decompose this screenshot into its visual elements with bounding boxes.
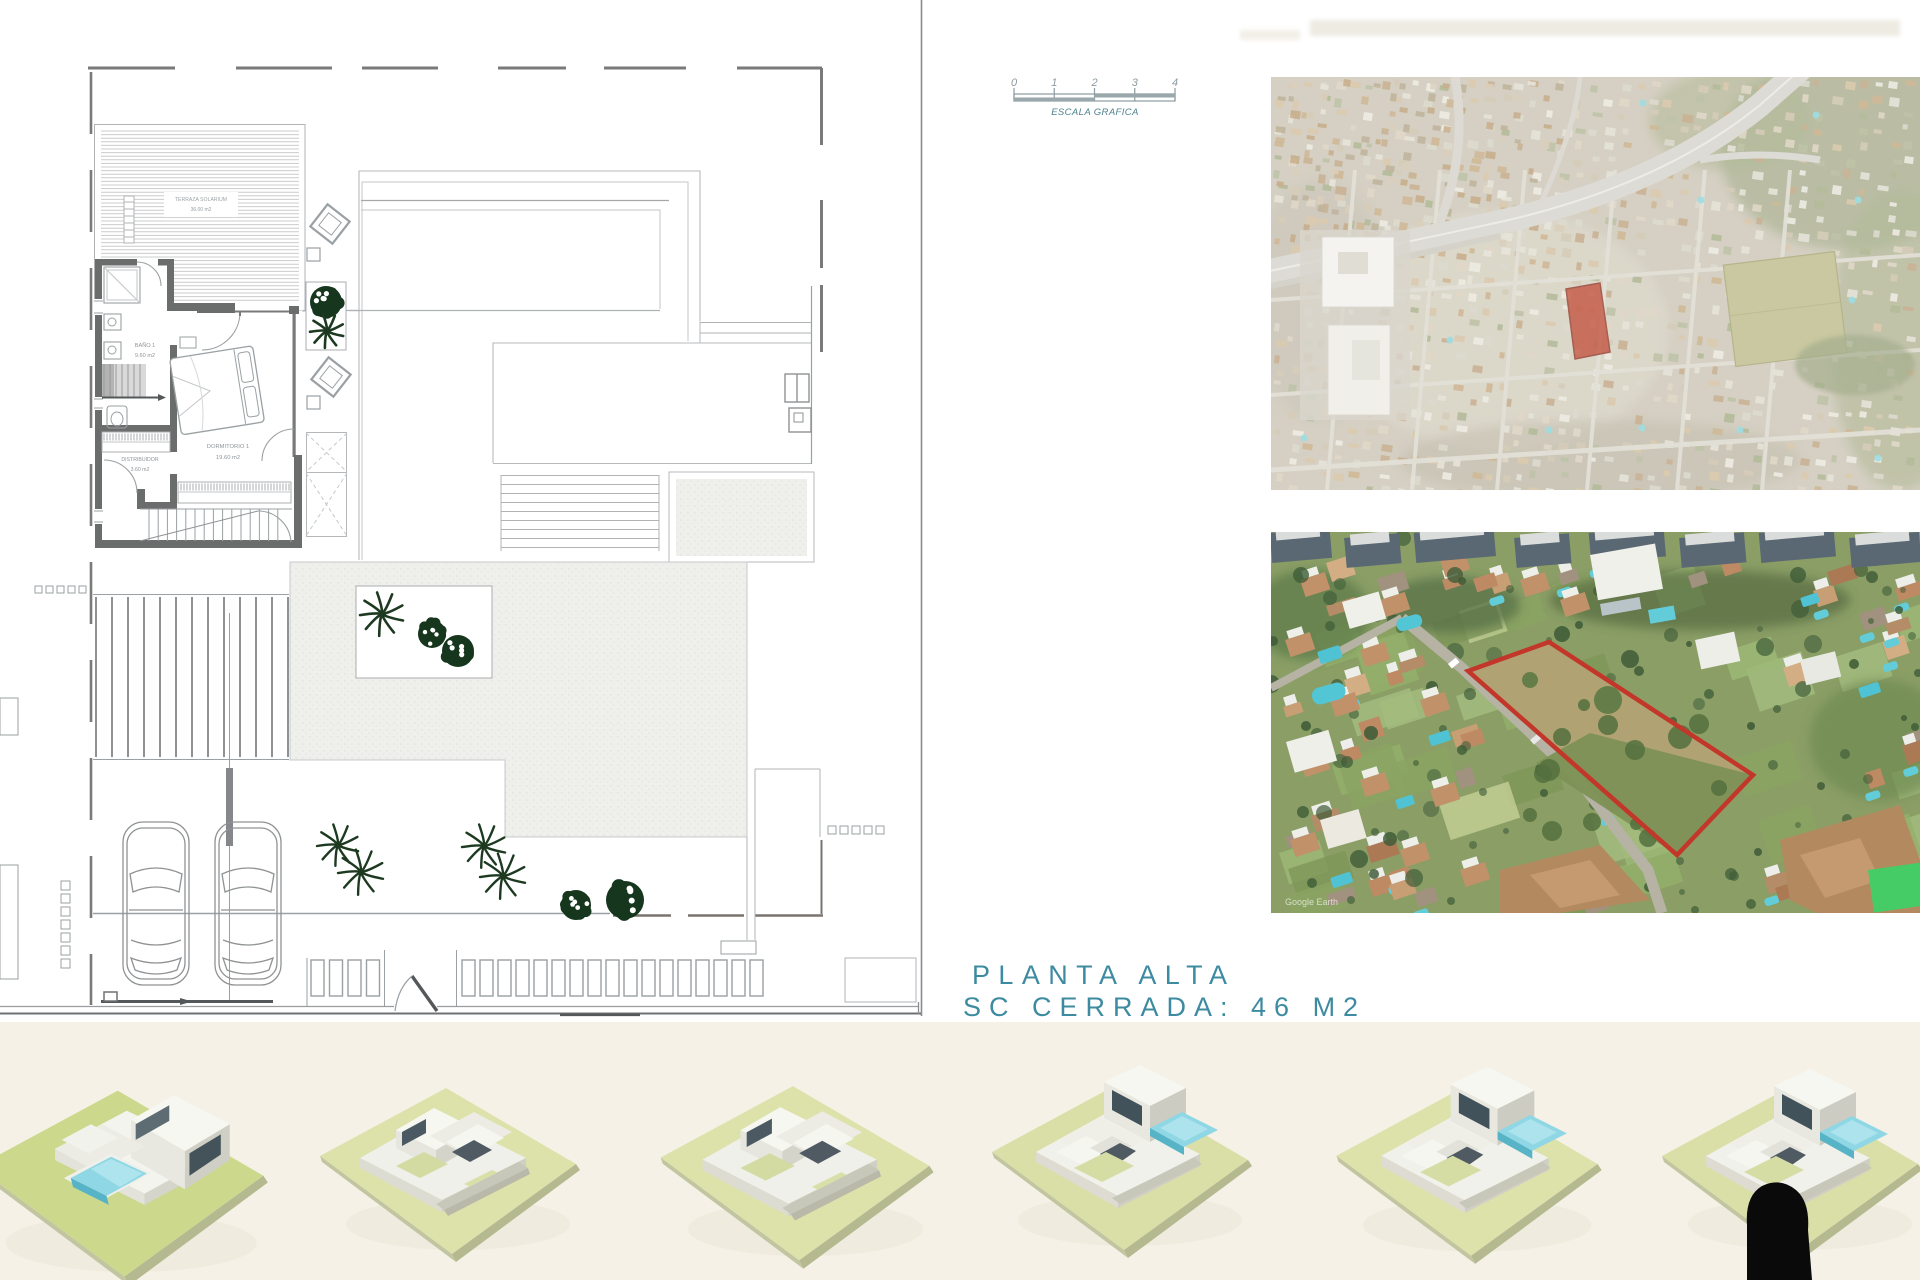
svg-text:Google Earth: Google Earth bbox=[1285, 897, 1338, 907]
svg-text:DORMITORIO 1: DORMITORIO 1 bbox=[207, 444, 249, 450]
svg-text:9.60 m2: 9.60 m2 bbox=[135, 353, 155, 359]
svg-text:3.60 m2: 3.60 m2 bbox=[131, 467, 150, 473]
svg-text:4: 4 bbox=[1172, 77, 1178, 89]
svg-text:PLANTA ALTA: PLANTA ALTA bbox=[972, 960, 1235, 990]
svg-text:2: 2 bbox=[1090, 77, 1097, 89]
svg-text:3: 3 bbox=[1132, 77, 1139, 89]
svg-text:19.60 m2: 19.60 m2 bbox=[216, 455, 240, 461]
svg-text:DISTRIBUIDOR: DISTRIBUIDOR bbox=[121, 457, 158, 463]
svg-text:SC CERRADA: 46 M2: SC CERRADA: 46 M2 bbox=[963, 992, 1366, 1022]
svg-text:36.00 m2: 36.00 m2 bbox=[191, 207, 212, 213]
svg-text:0: 0 bbox=[1011, 77, 1018, 89]
svg-text:ESCALA GRAFICA: ESCALA GRAFICA bbox=[1051, 107, 1139, 118]
svg-text:TERRAZA SOLARIUM: TERRAZA SOLARIUM bbox=[175, 197, 227, 203]
svg-text:1: 1 bbox=[1051, 77, 1057, 89]
svg-text:BAÑO 1: BAÑO 1 bbox=[135, 342, 156, 349]
